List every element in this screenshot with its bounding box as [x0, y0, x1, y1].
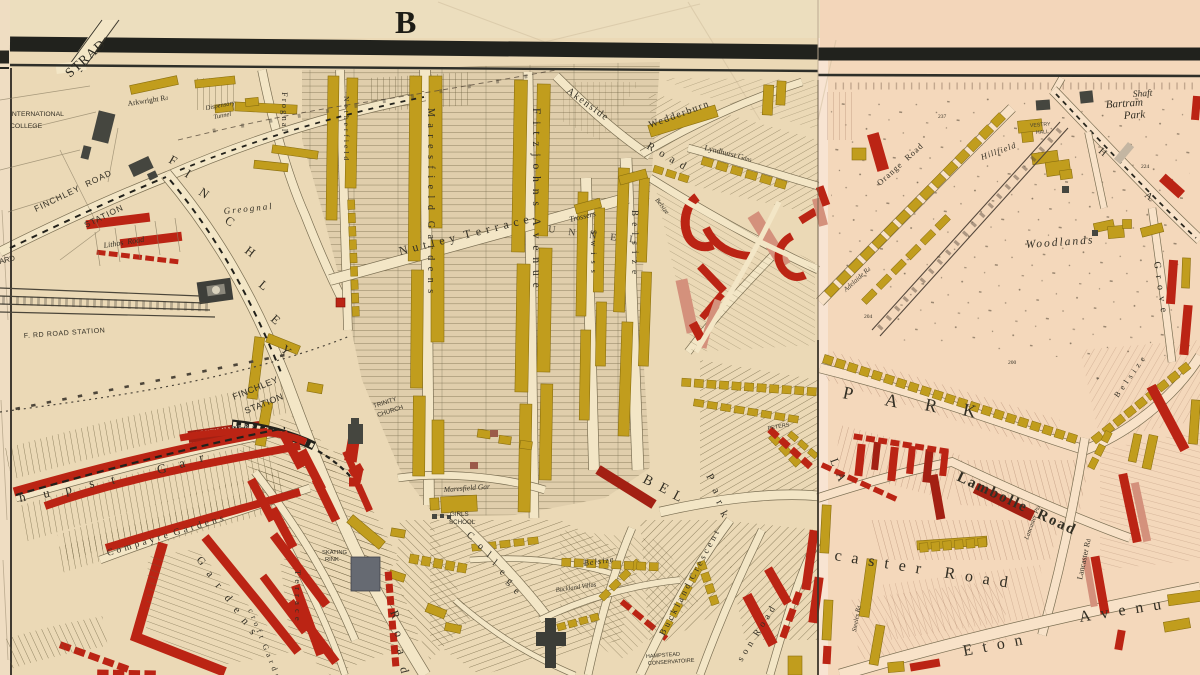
- svg-text:COLLEGE: COLLEGE: [10, 123, 43, 130]
- svg-text:B: B: [395, 4, 416, 40]
- svg-text:F r o g n a l: F r o g n a l: [280, 92, 290, 132]
- svg-text:SKATING: SKATING: [322, 550, 348, 556]
- svg-text:GIRLS: GIRLS: [450, 511, 469, 518]
- svg-text:S w i s s: S w i s s: [589, 230, 598, 275]
- svg-text:M a r e s f i e l d G a r d e: M a r e s f i e l d G a r d e n s: [425, 108, 436, 295]
- svg-text:Netherfield: Netherfield: [342, 96, 351, 163]
- svg-text:*: *: [1096, 376, 1100, 384]
- svg-text:INTERNATIONAL: INTERNATIONAL: [10, 111, 64, 118]
- svg-text:F i t z j o h n s A v e n u e: F i t z j o h n s A v e n u e: [530, 108, 542, 290]
- svg-text:SCHOOL: SCHOOL: [449, 519, 476, 526]
- svg-text:237: 237: [938, 114, 947, 120]
- svg-text:B e l s i z e: B e l s i z e: [630, 210, 640, 276]
- svg-text:E: E: [610, 232, 617, 244]
- svg-text:RINK: RINK: [325, 557, 339, 563]
- svg-text:204: 204: [864, 314, 873, 320]
- svg-text:224: 224: [1141, 164, 1150, 170]
- svg-text:200: 200: [1008, 360, 1017, 366]
- svg-text:N: N: [568, 227, 576, 239]
- svg-text:T e r r a c e: T e r r a c e: [293, 570, 303, 622]
- svg-text:Park: Park: [1122, 108, 1146, 122]
- svg-text:HALL: HALL: [1036, 129, 1049, 136]
